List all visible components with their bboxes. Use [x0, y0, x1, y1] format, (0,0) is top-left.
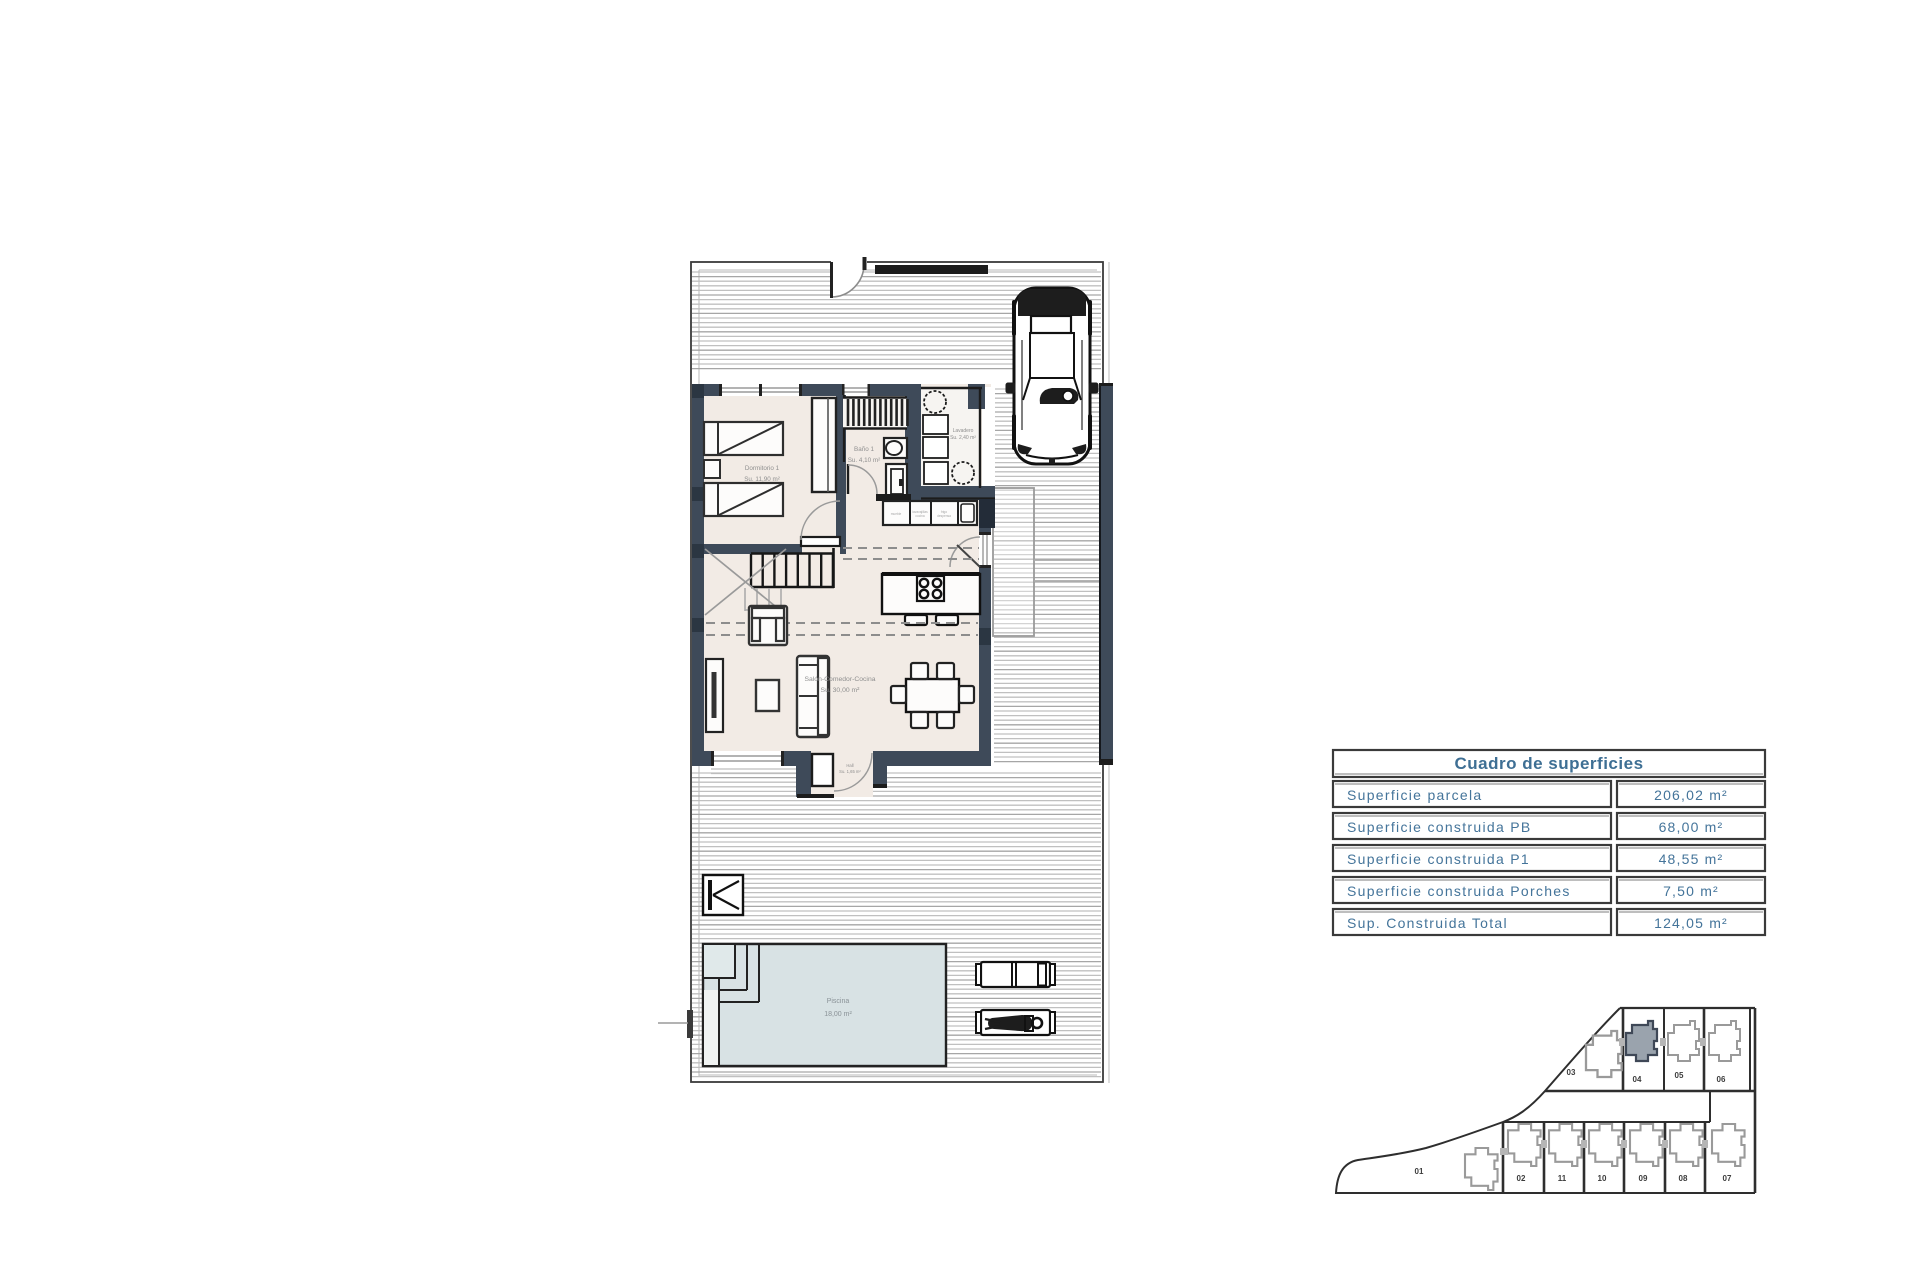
svg-text:206,02 m²: 206,02 m²	[1654, 787, 1728, 803]
svg-text:11: 11	[1558, 1174, 1567, 1183]
svg-text:Su. 30,00 m²: Su. 30,00 m²	[821, 687, 861, 694]
svg-text:10: 10	[1598, 1174, 1607, 1183]
svg-text:despensa: despensa	[937, 514, 951, 518]
svg-text:06: 06	[1717, 1075, 1726, 1084]
svg-text:Superficie parcela: Superficie parcela	[1347, 787, 1482, 803]
svg-text:Sup. Construida Total: Sup. Construida Total	[1347, 915, 1508, 931]
svg-text:Lavadero: Lavadero	[953, 428, 974, 434]
svg-text:Su. 4,10 m²: Su. 4,10 m²	[848, 457, 881, 464]
svg-text:Superficie construida P1: Superficie construida P1	[1347, 851, 1530, 867]
svg-text:cocina: cocina	[915, 514, 924, 518]
svg-text:Piscina: Piscina	[827, 998, 850, 1005]
svg-text:Dormitorio 1: Dormitorio 1	[745, 465, 780, 472]
svg-text:Salón-Comedor-Cocina: Salón-Comedor-Cocina	[804, 676, 875, 683]
svg-text:mueble: mueble	[891, 512, 902, 516]
svg-text:Su. 11,90 m²: Su. 11,90 m²	[744, 476, 780, 483]
svg-text:09: 09	[1639, 1174, 1648, 1183]
svg-text:Superficie construida Porches: Superficie construida Porches	[1347, 883, 1571, 899]
svg-text:01: 01	[1415, 1167, 1424, 1176]
svg-text:18,00 m²: 18,00 m²	[824, 1011, 852, 1018]
svg-text:7,50 m²: 7,50 m²	[1663, 883, 1719, 899]
svg-text:05: 05	[1675, 1071, 1684, 1080]
svg-text:Cuadro de superficies: Cuadro de superficies	[1454, 754, 1643, 773]
svg-text:68,00 m²: 68,00 m²	[1659, 819, 1724, 835]
svg-text:08: 08	[1679, 1174, 1688, 1183]
svg-text:Baño 1: Baño 1	[854, 446, 874, 453]
svg-text:04: 04	[1633, 1075, 1642, 1084]
svg-text:48,55 m²: 48,55 m²	[1659, 851, 1724, 867]
svg-text:07: 07	[1723, 1174, 1732, 1183]
svg-text:03: 03	[1567, 1068, 1576, 1077]
svg-text:02: 02	[1517, 1174, 1526, 1183]
svg-text:Superficie construida PB: Superficie construida PB	[1347, 819, 1532, 835]
svg-text:Su. 1,65 m²: Su. 1,65 m²	[839, 769, 861, 774]
svg-text:Hall: Hall	[846, 763, 853, 768]
svg-text:Su. 2,40 m²: Su. 2,40 m²	[950, 435, 976, 441]
svg-text:124,05 m²: 124,05 m²	[1654, 915, 1728, 931]
